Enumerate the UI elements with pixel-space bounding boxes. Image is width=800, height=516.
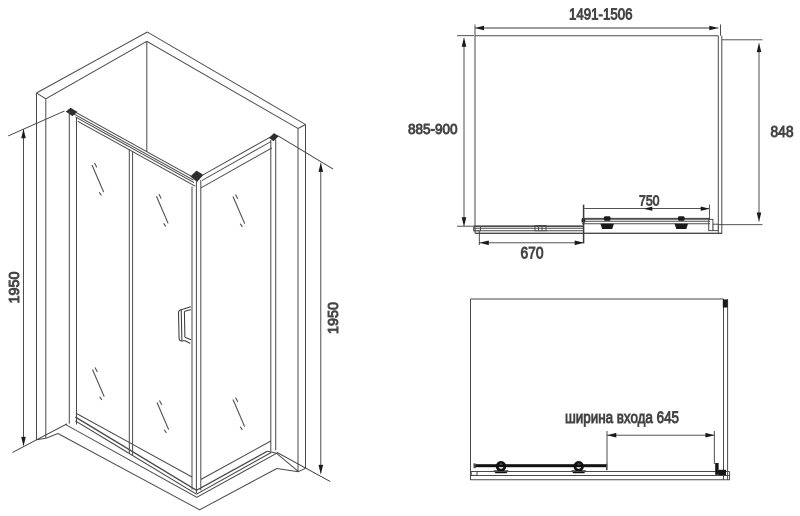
- svg-text:750: 750: [639, 193, 660, 210]
- svg-text:670: 670: [521, 245, 544, 263]
- svg-text:848: 848: [771, 124, 794, 141]
- svg-text:885-900: 885-900: [408, 121, 458, 138]
- svg-text:1950: 1950: [326, 302, 342, 334]
- svg-text:1950: 1950: [7, 272, 23, 304]
- svg-text:1491-1506: 1491-1506: [569, 7, 633, 24]
- svg-text:ширина входа 645: ширина входа 645: [565, 409, 679, 427]
